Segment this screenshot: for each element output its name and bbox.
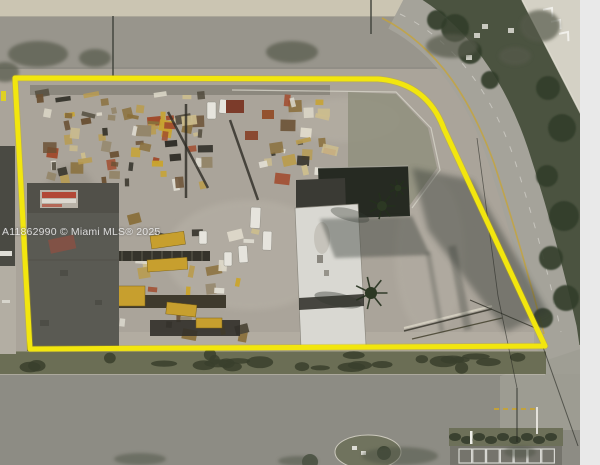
bottom-street xyxy=(0,348,583,465)
aerial-photo-canvas xyxy=(0,0,600,465)
satellite-photo: A11862990 © Miami MLS® 2025 xyxy=(0,0,600,465)
boundary-tick xyxy=(1,91,6,101)
left-edge-parcels xyxy=(0,146,16,354)
white-margin xyxy=(580,0,600,465)
